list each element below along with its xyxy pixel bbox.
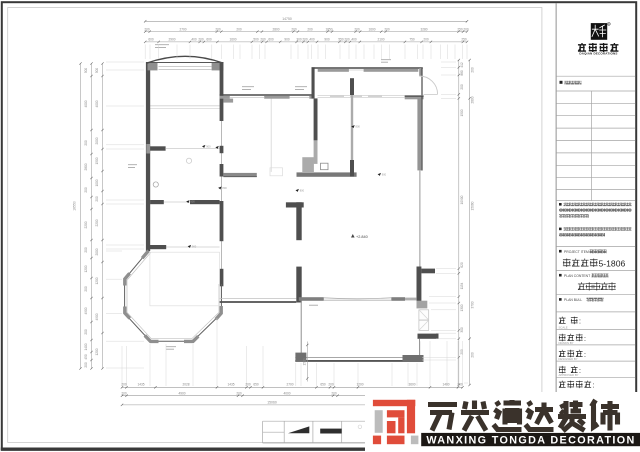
svg-text::: :	[579, 319, 581, 326]
svg-text:1154: 1154	[460, 282, 464, 289]
svg-text:620: 620	[460, 262, 464, 268]
svg-text:200: 200	[291, 27, 297, 31]
svg-text:2200: 2200	[95, 219, 99, 226]
svg-text:200: 200	[84, 247, 88, 253]
svg-text:3280: 3280	[420, 27, 427, 31]
svg-text:200: 200	[121, 382, 127, 386]
svg-text:1500: 1500	[460, 109, 464, 116]
svg-text:600: 600	[206, 38, 212, 42]
svg-text:500: 500	[84, 68, 88, 74]
svg-text:400: 400	[351, 38, 357, 42]
svg-text:WANXING TONGDA DECORATION: WANXING TONGDA DECORATION	[426, 434, 635, 446]
svg-text:200: 200	[307, 27, 313, 31]
svg-text:200: 200	[470, 352, 474, 358]
svg-text:1435: 1435	[137, 382, 144, 386]
svg-text:900: 900	[382, 172, 387, 176]
svg-text:300: 300	[296, 38, 302, 42]
svg-text:200: 200	[384, 27, 390, 31]
svg-text:200: 200	[457, 382, 463, 386]
svg-text:5-1806: 5-1806	[599, 258, 626, 268]
svg-text:APPROVED BY: APPROVED BY	[559, 373, 579, 377]
svg-text:400: 400	[191, 38, 197, 42]
svg-text:4000: 4000	[95, 100, 99, 107]
svg-text:900: 900	[324, 38, 330, 42]
svg-text:900: 900	[192, 244, 197, 248]
svg-text:200: 200	[245, 382, 251, 386]
svg-text:250: 250	[461, 38, 467, 42]
svg-text:DAQIAN DECORATIONS: DAQIAN DECORATIONS	[579, 51, 617, 55]
svg-text:200: 200	[84, 329, 88, 335]
svg-text:200: 200	[95, 196, 99, 202]
svg-text:200: 200	[260, 38, 266, 42]
svg-text:DRAWN BY: DRAWN BY	[559, 341, 574, 345]
svg-text:1850: 1850	[325, 27, 332, 31]
svg-text:4000: 4000	[283, 391, 290, 395]
svg-text:1500: 1500	[303, 358, 307, 365]
svg-text:200: 200	[84, 140, 88, 146]
svg-text:14750: 14750	[282, 17, 292, 21]
svg-text:1435: 1435	[227, 382, 234, 386]
svg-text:2800: 2800	[84, 163, 88, 170]
svg-text:4900: 4900	[84, 307, 88, 314]
svg-text:1200: 1200	[95, 348, 99, 355]
svg-text:DESIGNED BY: DESIGNED BY	[559, 357, 578, 361]
svg-text:2700: 2700	[179, 27, 186, 31]
svg-text:1200: 1200	[95, 277, 99, 284]
svg-text:800: 800	[300, 188, 305, 192]
svg-text:900: 900	[284, 38, 290, 42]
svg-text:200: 200	[84, 187, 88, 193]
svg-text:200: 200	[84, 362, 88, 368]
svg-text:1300: 1300	[460, 304, 464, 311]
svg-text:R: R	[608, 23, 610, 26]
svg-text:200: 200	[328, 382, 334, 386]
svg-text:1400: 1400	[442, 382, 449, 386]
svg-text:800: 800	[356, 125, 361, 129]
svg-text:1200: 1200	[356, 382, 363, 386]
svg-text:200: 200	[460, 84, 464, 90]
svg-text:250: 250	[457, 27, 463, 31]
svg-text:200: 200	[344, 38, 350, 42]
svg-text:412: 412	[460, 62, 464, 68]
svg-text:1000: 1000	[95, 179, 99, 186]
svg-text:200: 200	[470, 67, 474, 73]
svg-text:2900: 2900	[168, 38, 175, 42]
svg-text:500: 500	[253, 38, 259, 42]
svg-text:4900: 4900	[178, 391, 185, 395]
svg-text:16550: 16550	[73, 201, 77, 211]
svg-text:200: 200	[463, 27, 469, 31]
svg-text:200: 200	[215, 27, 221, 31]
svg-text:200: 200	[144, 27, 150, 31]
svg-text:900: 900	[190, 200, 195, 204]
svg-text:+2.840: +2.840	[356, 235, 368, 239]
svg-text:2000: 2000	[95, 248, 99, 255]
svg-text:750: 750	[409, 38, 415, 42]
svg-text:600: 600	[268, 38, 274, 42]
svg-text:550: 550	[338, 38, 344, 42]
svg-text:450: 450	[84, 354, 88, 360]
svg-text:3700: 3700	[470, 301, 474, 308]
svg-text:PLAN BULL: PLAN BULL	[564, 298, 582, 302]
svg-text:2028: 2028	[182, 382, 189, 386]
svg-text:1200: 1200	[84, 265, 88, 272]
svg-text:10900: 10900	[460, 195, 464, 204]
svg-text:200: 200	[460, 349, 464, 355]
svg-text:2000: 2000	[95, 137, 99, 144]
svg-text:15060: 15060	[267, 401, 277, 405]
svg-text:2100: 2100	[377, 38, 384, 42]
svg-text:900: 900	[206, 144, 211, 148]
svg-text:200: 200	[236, 27, 242, 31]
svg-text:200: 200	[354, 27, 360, 31]
svg-text:200: 200	[236, 391, 242, 395]
svg-text::: :	[584, 336, 586, 343]
svg-text:3600: 3600	[408, 382, 415, 386]
svg-text:800: 800	[222, 186, 227, 190]
svg-text::: :	[584, 352, 586, 359]
svg-text:880: 880	[460, 70, 464, 76]
svg-text:2200: 2200	[84, 221, 88, 228]
svg-text:1500: 1500	[95, 157, 99, 164]
svg-text:1600: 1600	[368, 27, 375, 31]
svg-text::: :	[593, 383, 595, 390]
svg-text:600: 600	[148, 38, 154, 42]
svg-text:650: 650	[253, 382, 259, 386]
svg-text:SCALE: SCALE	[559, 325, 568, 329]
svg-text:15060: 15060	[470, 201, 474, 210]
svg-text:200: 200	[331, 391, 337, 395]
svg-text:200: 200	[121, 391, 127, 395]
svg-text:2800: 2800	[272, 27, 279, 31]
svg-text:300: 300	[460, 327, 464, 333]
svg-text:400: 400	[309, 38, 315, 42]
svg-text::: :	[579, 368, 581, 375]
svg-text:4900: 4900	[95, 313, 99, 320]
svg-text:200: 200	[302, 38, 308, 42]
svg-text:200: 200	[198, 38, 204, 42]
svg-text:2700: 2700	[286, 382, 293, 386]
svg-text:650: 650	[320, 382, 326, 386]
svg-text:1600: 1600	[229, 38, 236, 42]
svg-text:200: 200	[84, 286, 88, 292]
svg-text:PROJECT ITEM: PROJECT ITEM	[564, 250, 589, 254]
svg-text:4000: 4000	[84, 100, 88, 107]
svg-text:PLAN CONTENT: PLAN CONTENT	[564, 274, 590, 278]
svg-text:500: 500	[95, 68, 99, 74]
svg-text:200: 200	[423, 38, 429, 42]
svg-text:1400: 1400	[84, 343, 88, 350]
svg-text:2800: 2800	[470, 96, 474, 103]
